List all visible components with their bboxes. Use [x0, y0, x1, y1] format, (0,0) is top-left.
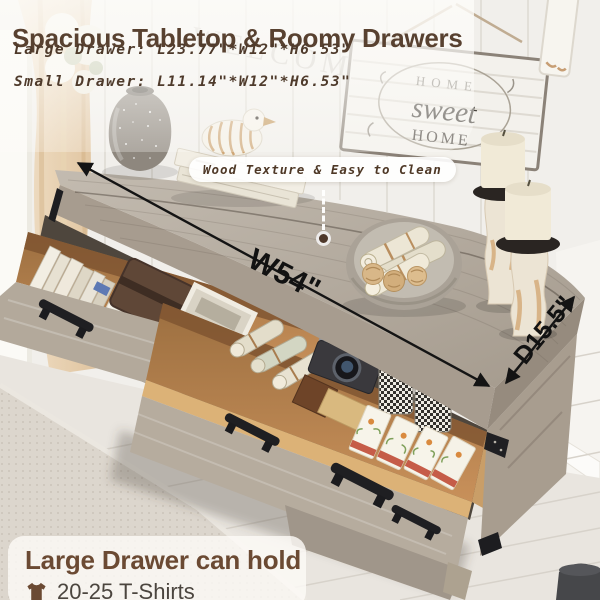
small-drawer-spec-label: Small Drawer:	[14, 74, 147, 90]
capacity-row: 20-25 T-Shirts	[8, 576, 306, 600]
capacity-card: Large Drawer can hold 20-25 T-Shirts	[8, 536, 306, 600]
small-drawer-spec-value: L11.14"*W12"*H6.53"	[157, 74, 351, 90]
plant-pot	[556, 563, 600, 600]
callout-pointer-dot	[316, 231, 331, 246]
feature-callout: Wood Texture & Easy to Clean	[189, 157, 456, 182]
capacity-value: 20-25 T-Shirts	[57, 579, 195, 600]
capacity-title: Large Drawer can hold	[8, 536, 306, 576]
callout-pointer-line	[322, 190, 325, 230]
large-drawer-spec-value: L23.77"*W12"*H6.53"	[157, 42, 351, 58]
tshirt-icon	[25, 581, 48, 600]
small-drawer-spec: Small Drawer: L11.14"*W12"*H6.53"	[14, 74, 351, 90]
large-drawer-spec: Large Drawer: L23.77"*W12"*H6.53"	[14, 42, 351, 58]
product-infographic: WELCOME	[0, 0, 600, 600]
large-drawer-spec-label: Large Drawer:	[14, 42, 147, 58]
